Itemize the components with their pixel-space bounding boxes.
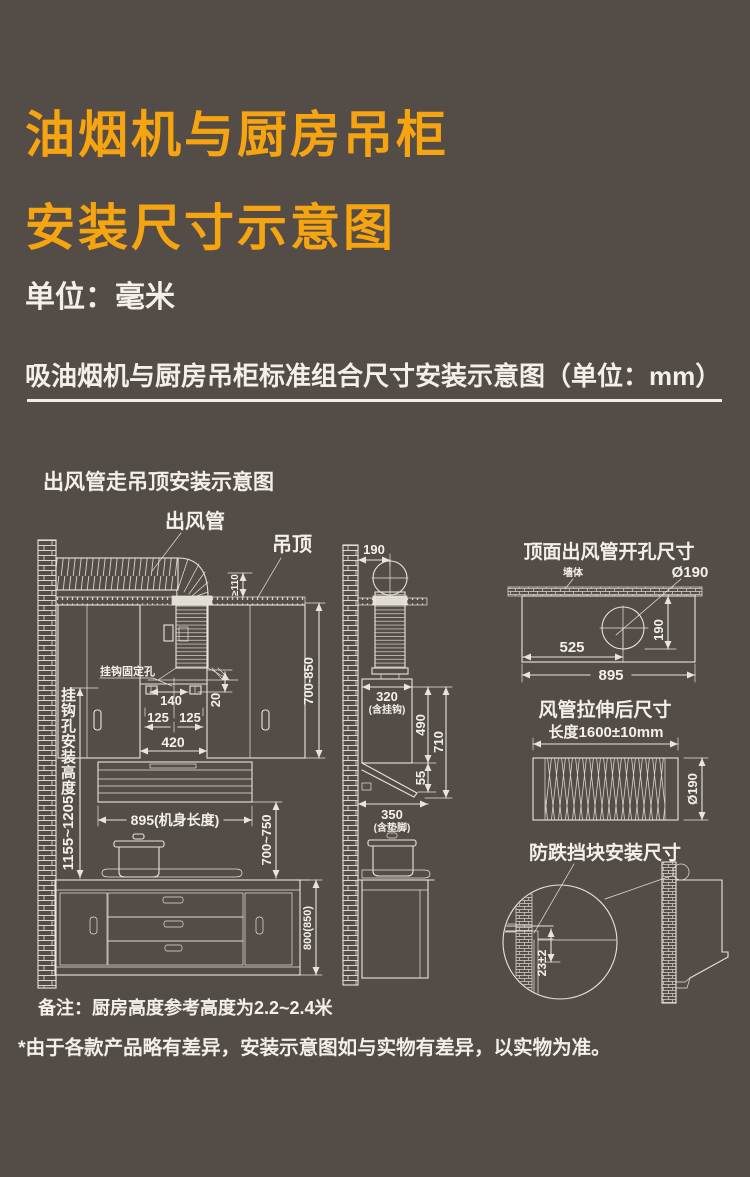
page-title-line2: 安装尺寸示意图	[25, 188, 396, 260]
divider-line	[27, 399, 722, 402]
dim-hole-center-y: 190	[651, 619, 666, 641]
hook-hole-label: 挂钩固定孔	[100, 664, 155, 678]
body-length-dimension: 895(机身长度)	[98, 806, 252, 828]
dim-body-length: 895(机身长度)	[131, 812, 220, 828]
wall-label: 墙体	[563, 566, 584, 579]
detail-connector	[605, 876, 671, 899]
top-opening-diagram: 顶面出风管开孔尺寸 墙体 Ø190 525 190 895	[508, 540, 708, 684]
section-subtitle: 吸油烟机与厨房吊柜标准组合尺寸安装示意图（单位：mm）	[25, 356, 721, 393]
ceiling-diagram-title: 出风管走吊顶安装示意图	[43, 470, 274, 494]
ceiling-leader-line	[258, 558, 281, 597]
dim-hook-height-range: 1155~1205	[60, 796, 77, 871]
cabinet-handle	[94, 710, 101, 730]
dim-top-depth: 320	[376, 689, 398, 704]
dim-panel-width: 895	[598, 667, 623, 684]
ceiling-label: 吊顶	[272, 533, 312, 556]
opening-title: 顶面出风管开孔尺寸	[523, 540, 694, 563]
dim-offset-right: 125	[179, 710, 201, 725]
left-brick-wall	[38, 540, 56, 988]
ceiling-panel	[522, 596, 695, 662]
base-cabinet	[55, 880, 310, 975]
dim-hook-spacing: 140	[160, 693, 182, 708]
hood-wall-side-view	[662, 862, 728, 1003]
hook-dimensions: 140 125 125 20 420	[140, 670, 232, 753]
stop-block-diagram: 防跌挡块安装尺寸 23±2	[503, 841, 728, 1003]
stop-block-title: 防跌挡块安装尺寸	[529, 841, 681, 864]
opening-wall-band	[508, 587, 702, 596]
front-view-diagram: 出风管走吊顶安装示意图	[38, 470, 325, 988]
side-dimensions: 320 (含挂钩) 490 55 710 350 (含垫脚)	[358, 687, 452, 834]
hook-height-label: 挂钩孔安装高度	[60, 686, 77, 797]
duct-diameter-label: Ø190	[685, 773, 700, 805]
page-title-line1: 油烟机与厨房吊柜	[25, 95, 449, 167]
hole-diameter-label: Ø190	[672, 564, 709, 581]
dim-offset-left: 125	[147, 710, 169, 725]
dim-bottom-depth: 350	[381, 807, 403, 822]
side-view-diagram: 190 320 (含挂钩)	[343, 542, 452, 985]
cabinet-handle	[262, 710, 269, 730]
stop-block-leader	[534, 864, 574, 933]
stretched-duct-diagram: 风管拉伸后尺寸 长度1600±10mm Ø190	[533, 698, 708, 820]
dim-hood-to-counter: 700~750	[259, 815, 274, 866]
dim-top-depth-note: (含挂钩)	[369, 703, 406, 716]
dim-wall-cabinet-height: 700-850	[301, 657, 316, 705]
dim-body-height: 490	[413, 714, 428, 736]
horizontal-duct	[56, 558, 208, 597]
dim-min-clearance: ≥110	[230, 574, 241, 596]
stove	[102, 869, 242, 877]
dim-canopy-height: 55	[413, 771, 428, 785]
dim-duct-offset: 190	[363, 542, 385, 557]
disclaimer-note: *由于各款产品略有差异，安装示意图如与实物有差异，以实物为准。	[18, 1031, 611, 1060]
side-corrugated-duct	[372, 592, 408, 679]
side-pot	[368, 833, 416, 876]
cooking-pot	[114, 834, 164, 877]
dim-hook-drop: 20	[208, 693, 223, 707]
side-stove	[362, 870, 430, 878]
side-brick-wall	[343, 545, 358, 985]
duct-length-label: 长度1600±10mm	[549, 723, 664, 741]
side-base-cabinet	[358, 880, 434, 978]
dim-counter-height: 800(850)	[302, 906, 314, 950]
dim-recess-width: 420	[161, 734, 185, 750]
installation-diagram: 出风管走吊顶安装示意图	[0, 440, 750, 1020]
unit-label: 单位：毫米	[25, 272, 175, 316]
dim-bottom-depth-note: (含垫脚)	[374, 821, 411, 834]
duct-size-title: 风管拉伸后尺寸	[538, 698, 671, 721]
duct-top-view	[372, 560, 408, 596]
remark-note: 备注：厨房高度参考高度为2.2~2.4米	[38, 994, 333, 1020]
dim-stop-block-offset: 23±2	[535, 949, 549, 976]
dim-total-height: 710	[431, 731, 446, 753]
product-install-page: 油烟机与厨房吊柜 安装尺寸示意图 单位：毫米 吸油烟机与厨房吊柜标准组合尺寸安装…	[0, 0, 750, 1177]
right-wall-cabinet	[207, 605, 305, 758]
hood-body	[98, 762, 252, 802]
duct-label: 出风管	[165, 509, 225, 533]
dim-hole-center-x: 525	[559, 639, 584, 656]
vertical-duct	[164, 596, 212, 668]
